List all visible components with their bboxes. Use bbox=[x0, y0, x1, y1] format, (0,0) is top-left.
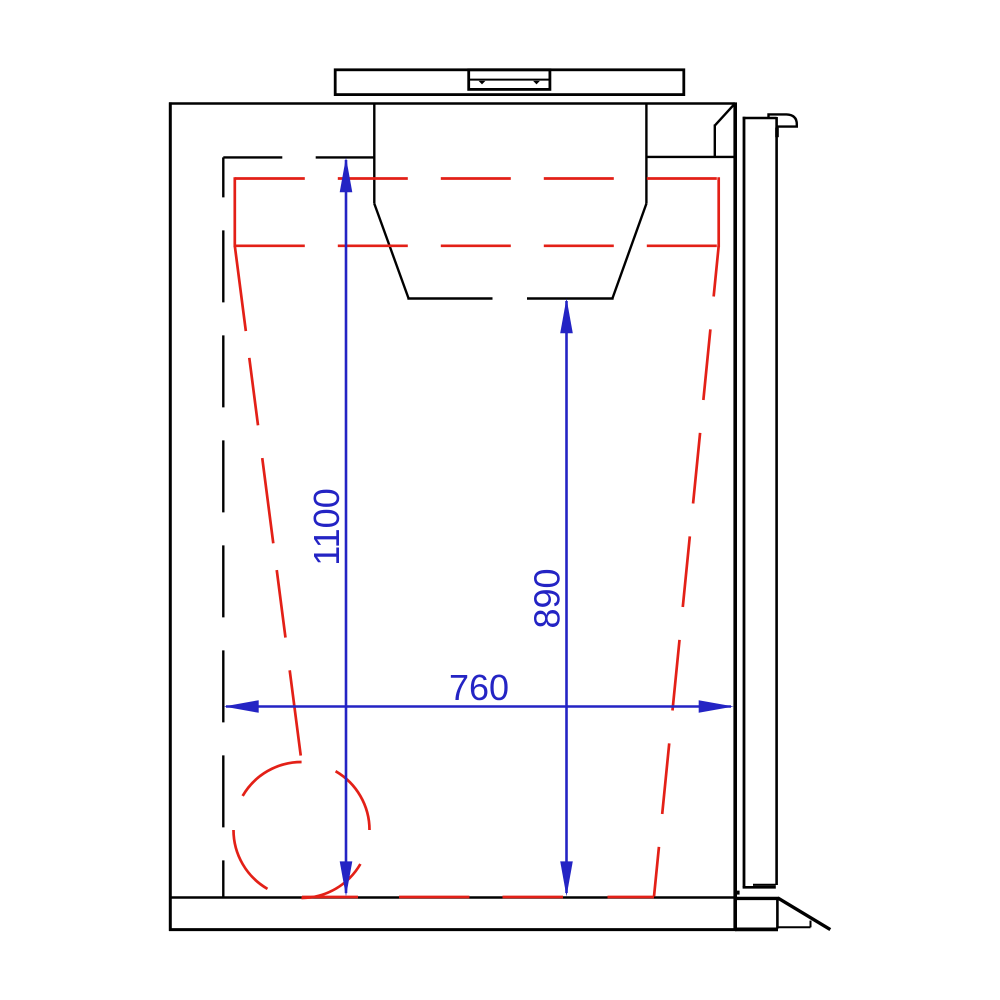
svg-text:1100: 1100 bbox=[306, 488, 347, 565]
svg-text:760: 760 bbox=[449, 667, 509, 708]
svg-text:890: 890 bbox=[527, 568, 568, 628]
